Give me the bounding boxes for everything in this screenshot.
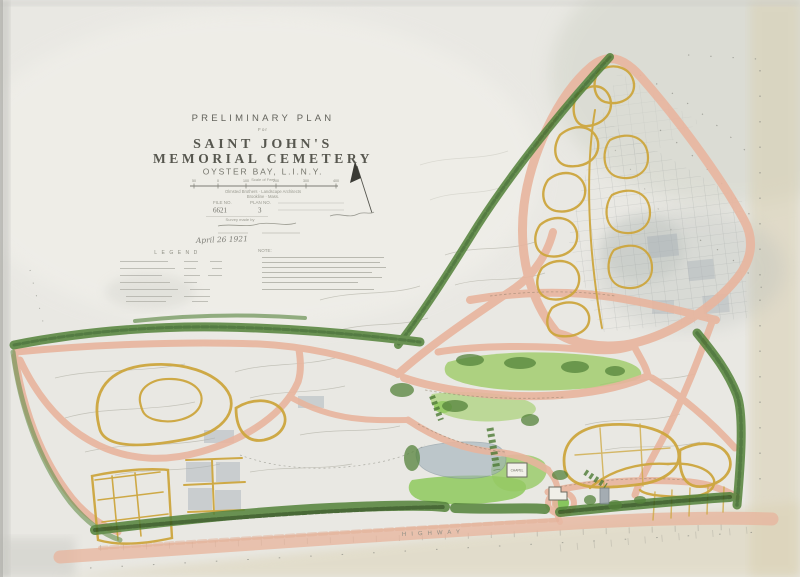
plan-no-value: 3 <box>258 207 262 215</box>
svg-text:50: 50 <box>192 179 196 183</box>
scale-caption: Scale of Feet <box>251 177 275 182</box>
survey-note: Survey made by <box>226 217 255 222</box>
location-line: OYSTER BAY, L.I.N.Y. <box>203 167 324 177</box>
title-line2: MEMORIAL CEMETERY <box>153 151 373 166</box>
for-word: For <box>258 127 268 132</box>
svg-text:0: 0 <box>217 179 219 183</box>
title-line1: SAINT JOHN'S <box>193 137 333 152</box>
date-annotation: April 26 1921 <box>195 234 248 245</box>
file-no-value: 6621 <box>213 207 228 215</box>
chapel-label: CHAPEL <box>511 469 524 473</box>
service-building <box>600 488 609 504</box>
firm-line2: Brookline · Mass. <box>247 194 279 199</box>
plan-no-label: PLAN NO. <box>250 200 271 205</box>
svg-text:300: 300 <box>303 179 309 183</box>
svg-text:100: 100 <box>243 179 249 183</box>
cemetery-plan-drawing: CHAPEL PRELIMINARY PLAN For SAINT JOHN'S… <box>0 0 800 577</box>
note-heading: NOTE: <box>258 248 272 253</box>
plan-type: PRELIMINARY PLAN <box>192 113 335 124</box>
file-no-label: FILE NO. <box>213 200 232 205</box>
legend-heading: LEGEND <box>154 250 202 256</box>
svg-text:400: 400 <box>333 179 339 183</box>
scanned-plan-photo: CHAPEL PRELIMINARY PLAN For SAINT JOHN'S… <box>0 0 800 577</box>
svg-text:200: 200 <box>273 179 279 183</box>
